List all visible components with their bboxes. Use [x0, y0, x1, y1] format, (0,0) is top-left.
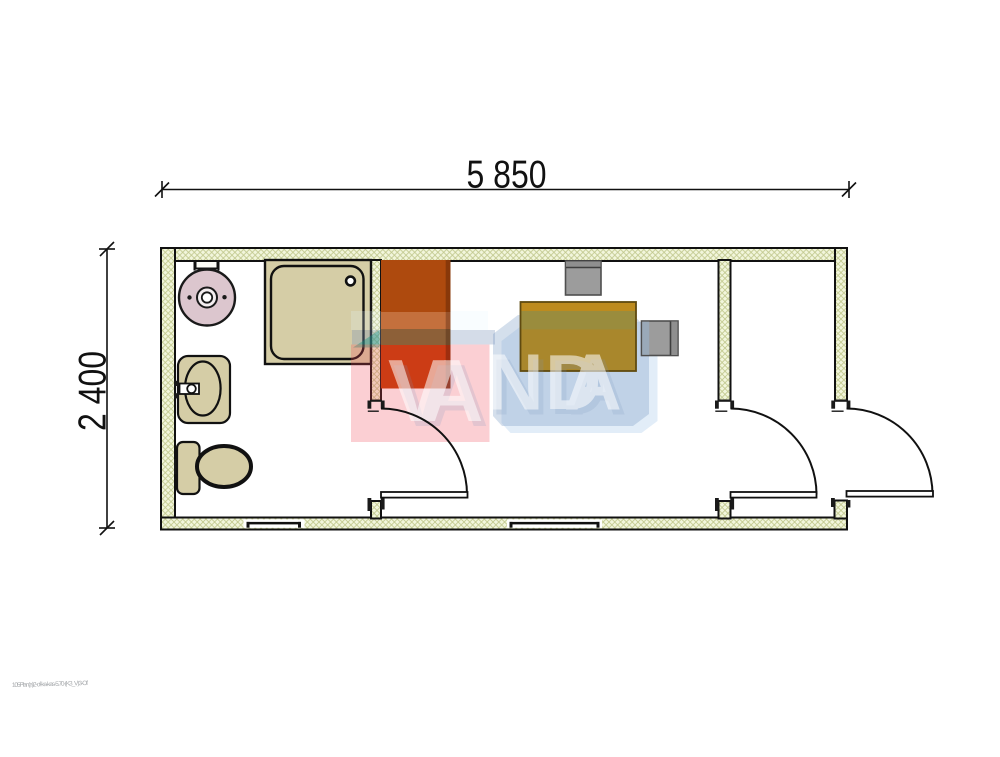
svg-text:105Plan(a)2-of-ka-kas-5.70-(K3: 105Plan(a)2-of-ka-kas-5.70-(K3_V)3-Of — [12, 680, 88, 689]
svg-text:5 850: 5 850 — [466, 153, 546, 197]
svg-text:A: A — [564, 338, 622, 427]
svg-text:2 400: 2 400 — [71, 351, 115, 431]
svg-text:A: A — [420, 341, 484, 440]
svg-text:N: N — [486, 338, 544, 427]
